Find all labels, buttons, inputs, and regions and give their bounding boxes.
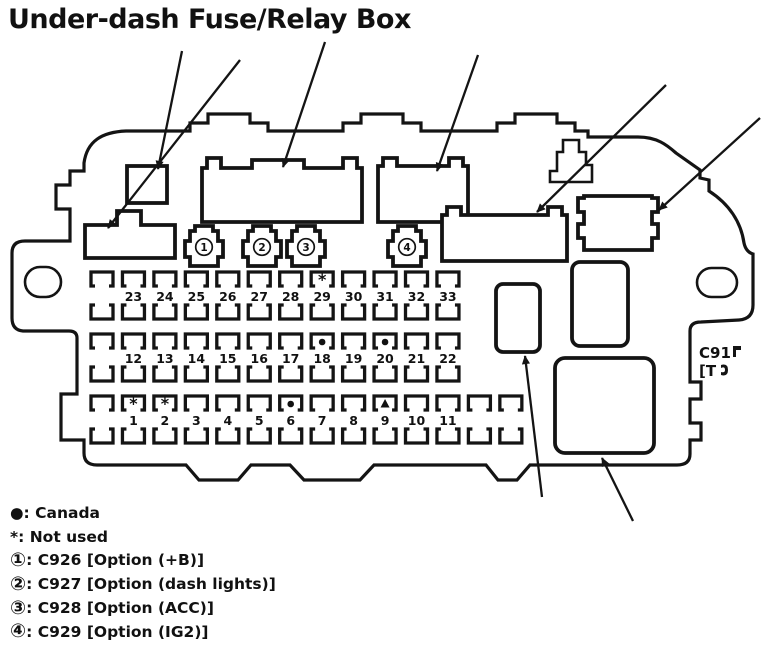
right-connector-label-line2: [T xyxy=(699,362,717,380)
circled-1-symbol: ① xyxy=(10,551,26,570)
not-used-asterisk-marker: * xyxy=(318,270,327,289)
plug-circled-number: 3 xyxy=(302,242,309,254)
fuse-number: 27 xyxy=(251,289,268,304)
fuse-number: 22 xyxy=(439,351,456,366)
not-used-asterisk-marker: * xyxy=(129,394,138,413)
legend-item-canada: ●: Canada xyxy=(10,501,276,525)
clipped-glyph-fragment xyxy=(721,365,728,376)
fuse-number: 6 xyxy=(286,413,295,428)
plug-circled-number: 1 xyxy=(200,242,207,254)
fuse-number: 2 xyxy=(161,413,170,428)
legend-item-c928: ③: C928 [Option (ACC)] xyxy=(10,596,276,620)
plug-circled-number: 4 xyxy=(403,242,410,254)
fuse-number: 30 xyxy=(345,289,363,304)
canada-dot-marker xyxy=(287,401,294,408)
option-plug-connector: 3 xyxy=(287,226,325,266)
fuse-number: 17 xyxy=(282,351,299,366)
mounting-hole-left xyxy=(25,267,61,297)
relay-tall xyxy=(572,262,628,346)
fuse-number: 23 xyxy=(125,289,142,304)
fuse-number: 15 xyxy=(219,351,236,366)
fuse-number: 3 xyxy=(192,413,201,428)
option-plug-connector: 4 xyxy=(388,226,426,266)
fuse-number: 12 xyxy=(125,351,142,366)
fuse-diagram-page: Under-dash Fuse/Relay Box xyxy=(0,0,765,653)
plug-circled-number: 2 xyxy=(258,242,265,254)
fuse-number: 13 xyxy=(156,351,173,366)
option-plug-connector: 1 xyxy=(185,226,223,266)
fuse-number: 32 xyxy=(408,289,425,304)
relay-small xyxy=(496,284,540,352)
fuse-number: 18 xyxy=(313,351,330,366)
fuse-number: 9 xyxy=(381,413,390,428)
fuse-number: 26 xyxy=(219,289,237,304)
fuse-number: 29 xyxy=(313,289,330,304)
legend-item-c927: ②: C927 [Option (dash lights)] xyxy=(10,572,276,596)
fuse-number: 8 xyxy=(349,413,358,428)
fuse-number: 1 xyxy=(129,413,138,428)
connector-long-top xyxy=(202,158,362,222)
fuse-number: 5 xyxy=(255,413,264,428)
right-connector-label-line1: C91 xyxy=(699,344,731,362)
fuse-number: 14 xyxy=(188,351,206,366)
canada-dot-symbol: ● xyxy=(10,504,24,522)
fuse-number: 19 xyxy=(345,351,362,366)
connector-mid-right xyxy=(442,207,567,261)
fuse-number: 20 xyxy=(376,351,394,366)
fuse-number: 10 xyxy=(408,413,426,428)
fuse-number: 25 xyxy=(188,289,205,304)
legend-item-not-used: *: Not used xyxy=(10,525,276,549)
circled-3-symbol: ③ xyxy=(10,599,26,618)
canada-dot-marker xyxy=(319,339,326,346)
fuse-number: 4 xyxy=(223,413,232,428)
relay-big xyxy=(555,358,654,453)
fuse-number: 31 xyxy=(376,289,393,304)
circled-4-symbol: ④ xyxy=(10,622,26,641)
legend-item-c926: ①: C926 [Option (+B)] xyxy=(10,549,276,573)
canada-dot-marker xyxy=(382,339,389,346)
clipped-glyph-fragment xyxy=(733,346,741,357)
legend: ●: Canada *: Not used ①: C926 [Option (+… xyxy=(10,501,276,644)
not-used-asterisk-marker: * xyxy=(161,394,170,413)
fuse-number: 16 xyxy=(251,351,269,366)
fuse-number: 28 xyxy=(282,289,299,304)
circled-2-symbol: ② xyxy=(10,575,26,594)
fuse-number: 24 xyxy=(156,289,174,304)
fuse-number: 7 xyxy=(318,413,327,428)
fuse-number: 11 xyxy=(439,413,456,428)
callout-arrow-relay-big xyxy=(602,458,633,521)
fuse-number: 21 xyxy=(408,351,425,366)
legend-item-c929: ④: C929 [Option (IG2)] xyxy=(10,620,276,644)
mounting-hole-right xyxy=(697,268,737,297)
fuse-number: 33 xyxy=(439,289,456,304)
connector-castle-right xyxy=(578,196,658,250)
option-plug-connector: 2 xyxy=(243,226,281,266)
not-used-asterisk-symbol: * xyxy=(10,528,18,546)
